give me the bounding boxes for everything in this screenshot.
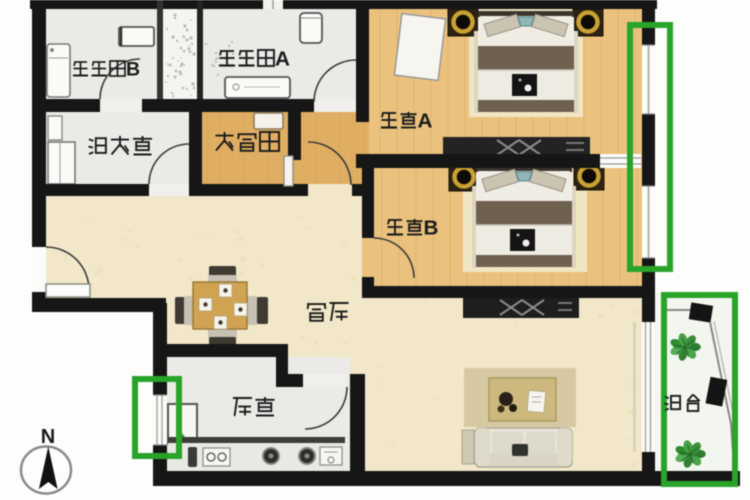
svg-text:N: N bbox=[41, 426, 55, 448]
svg-text:A: A bbox=[417, 110, 432, 133]
svg-text:B: B bbox=[423, 217, 438, 240]
svg-text:B: B bbox=[126, 59, 140, 81]
svg-text:A: A bbox=[275, 48, 290, 71]
